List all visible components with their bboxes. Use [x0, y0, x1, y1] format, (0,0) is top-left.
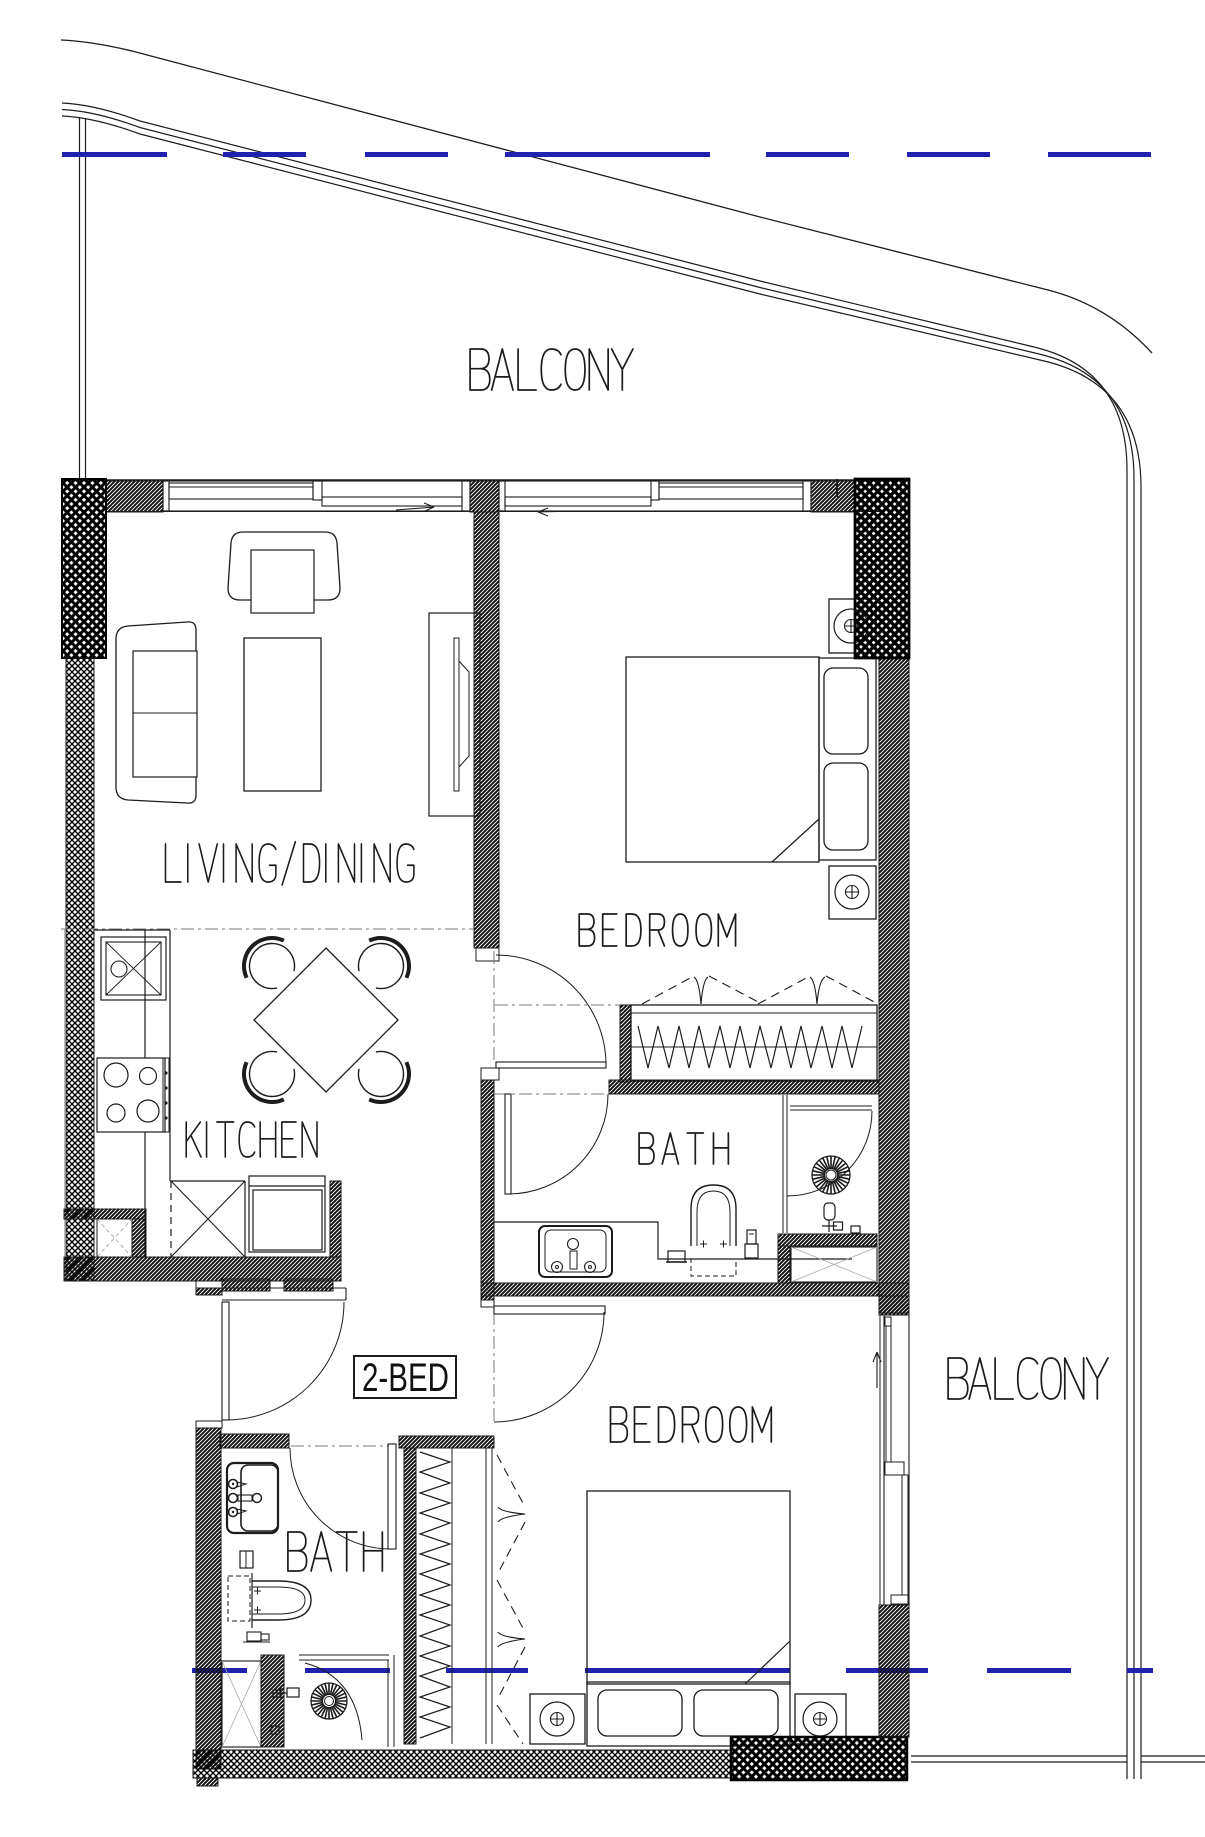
svg-text:2-BED: 2-BED: [362, 1356, 449, 1400]
